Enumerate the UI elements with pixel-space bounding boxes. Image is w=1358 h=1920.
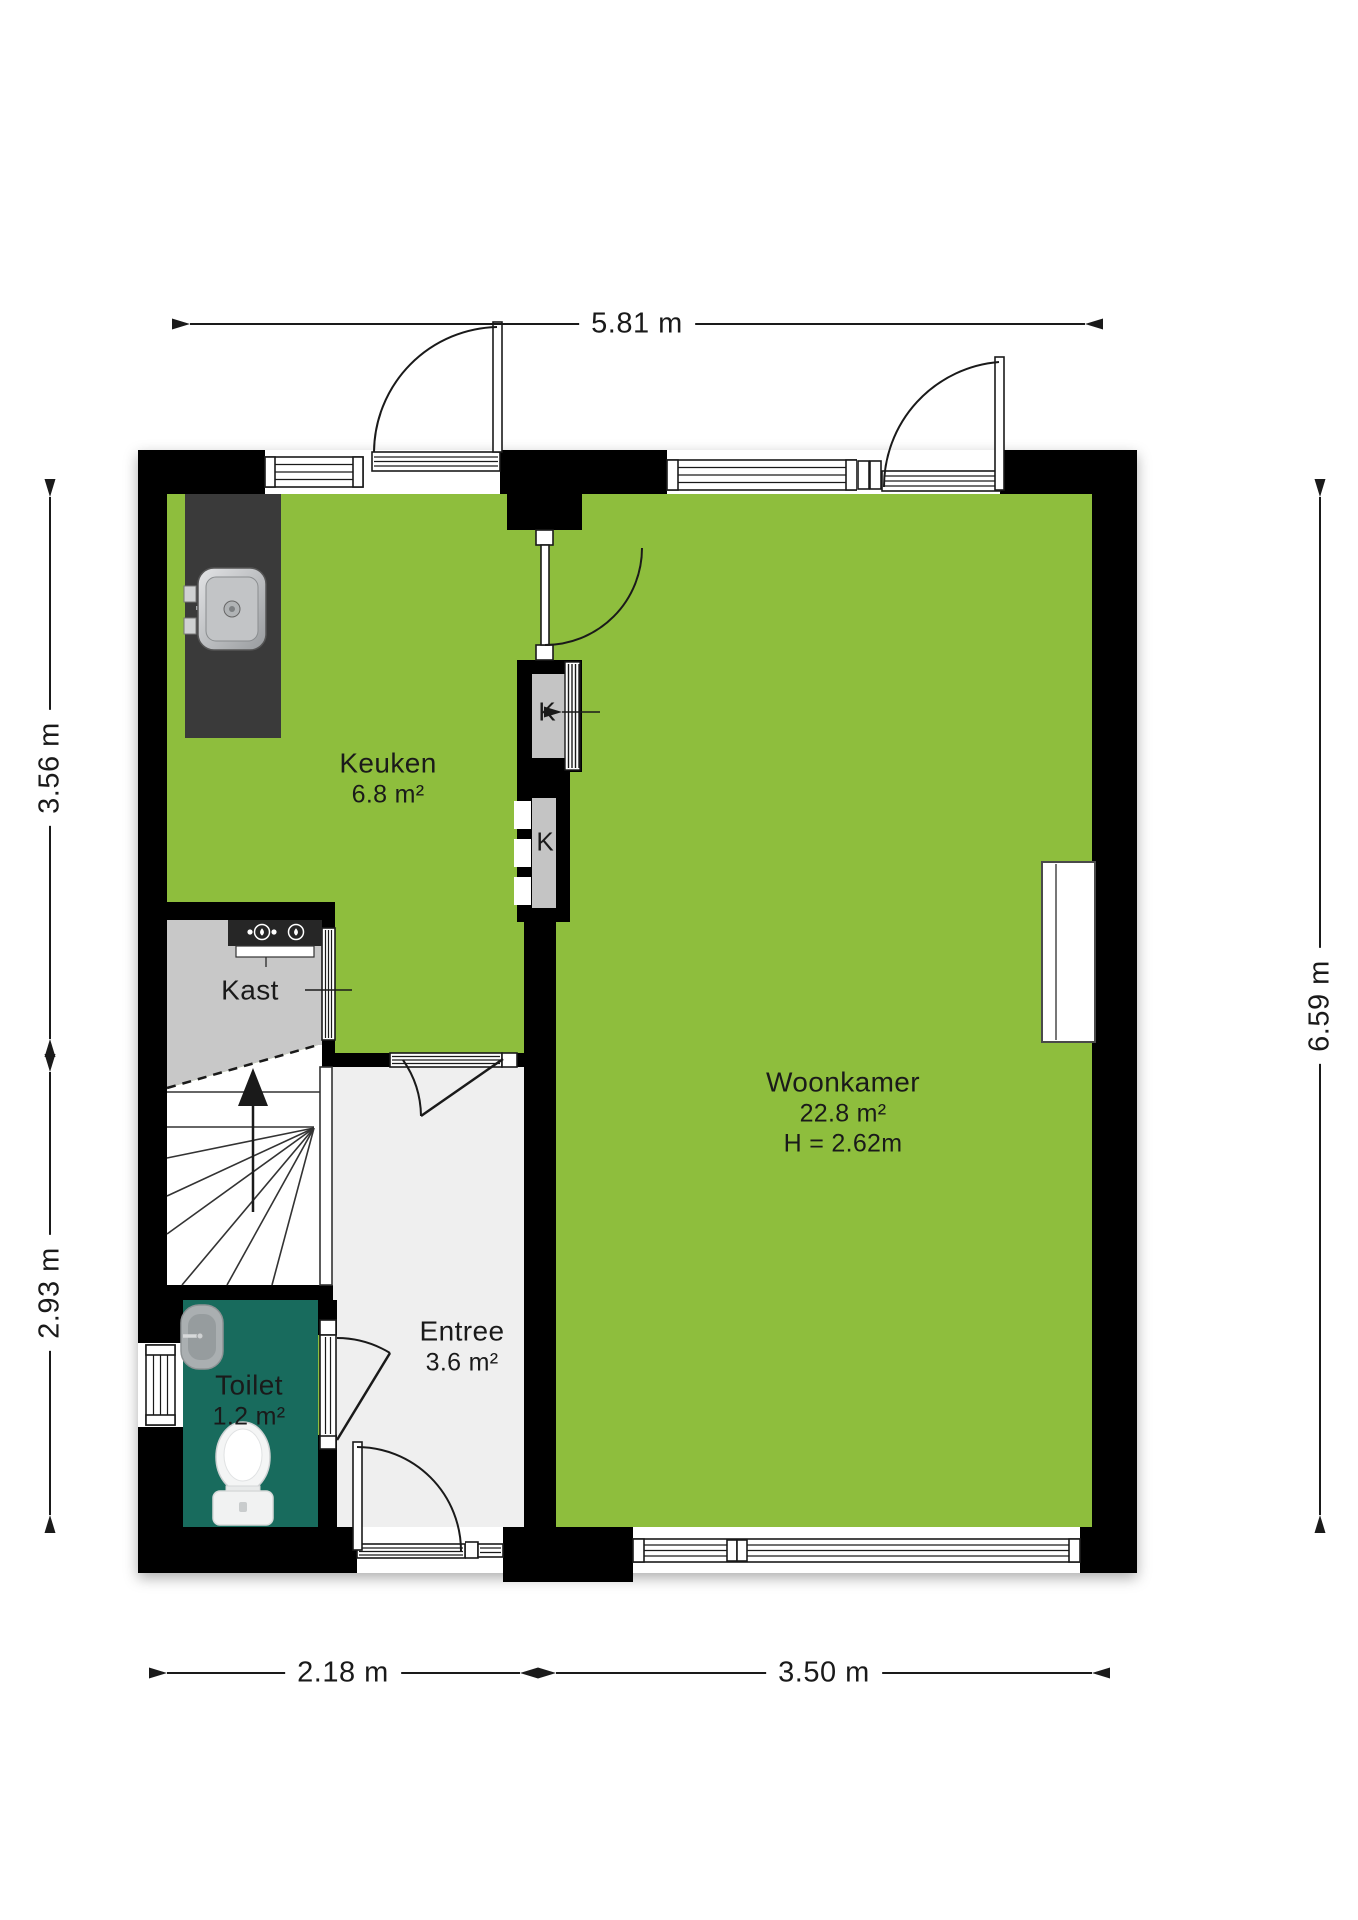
closet-bottom-dashed-door [514,801,531,905]
toilet-icon [213,1422,273,1525]
entree-area: 3.6 m² [420,1348,505,1378]
keuken-label: Keuken 6.8 m² [339,747,436,810]
floorplan-page: 5.81 m 3.56 m 2.93 m 6.59 m 2.18 m 3.50 … [0,0,1358,1920]
entree-label: Entree 3.6 m² [420,1315,505,1378]
entree-name: Entree [420,1315,505,1348]
window-sidelight-bottom [465,1527,503,1573]
floorplan-drawing [0,0,1358,1920]
toilet-area: 1.2 m² [213,1402,286,1432]
toilet-name: Toilet [213,1369,286,1402]
washbasin-icon [181,1305,223,1369]
dimension-left-lower: 2.93 m [34,1235,67,1351]
window-mullion-top [857,450,882,494]
dimension-bottom-right: 3.50 m [766,1657,882,1690]
keuken-area: 6.8 m² [339,780,436,810]
closet-top-label: K [538,697,555,728]
toilet-label: Toilet 1.2 m² [213,1369,286,1432]
kast-label: Kast [221,974,279,1007]
floor-fills [167,494,1092,1527]
door-woonkamer-exterior [882,357,1004,494]
woonkamer-ceiling-height: H = 2.62m [766,1129,920,1159]
door-keuken-exterior [372,322,502,494]
woonkamer-area: 22.8 m² [766,1099,920,1129]
window-keuken-top [265,450,363,494]
keuken-name: Keuken [339,747,436,780]
radiator-icon [1042,862,1095,1042]
window-woonkamer-bottom [633,1527,1080,1573]
window-toilet-left [138,1343,183,1427]
closet-bottom-label: K [536,827,553,858]
dimension-left-upper: 3.56 m [34,710,67,826]
window-woonkamer-top [667,450,857,494]
dimension-right: 6.59 m [1304,948,1337,1064]
woonkamer-name: Woonkamer [766,1066,920,1099]
woonkamer-label: Woonkamer 22.8 m² H = 2.62m [766,1066,920,1159]
dimension-top: 5.81 m [579,308,695,341]
dimension-bottom-left: 2.18 m [285,1657,401,1690]
closet-top-louver-door [565,662,580,770]
door-kast-louvered [322,928,335,1040]
